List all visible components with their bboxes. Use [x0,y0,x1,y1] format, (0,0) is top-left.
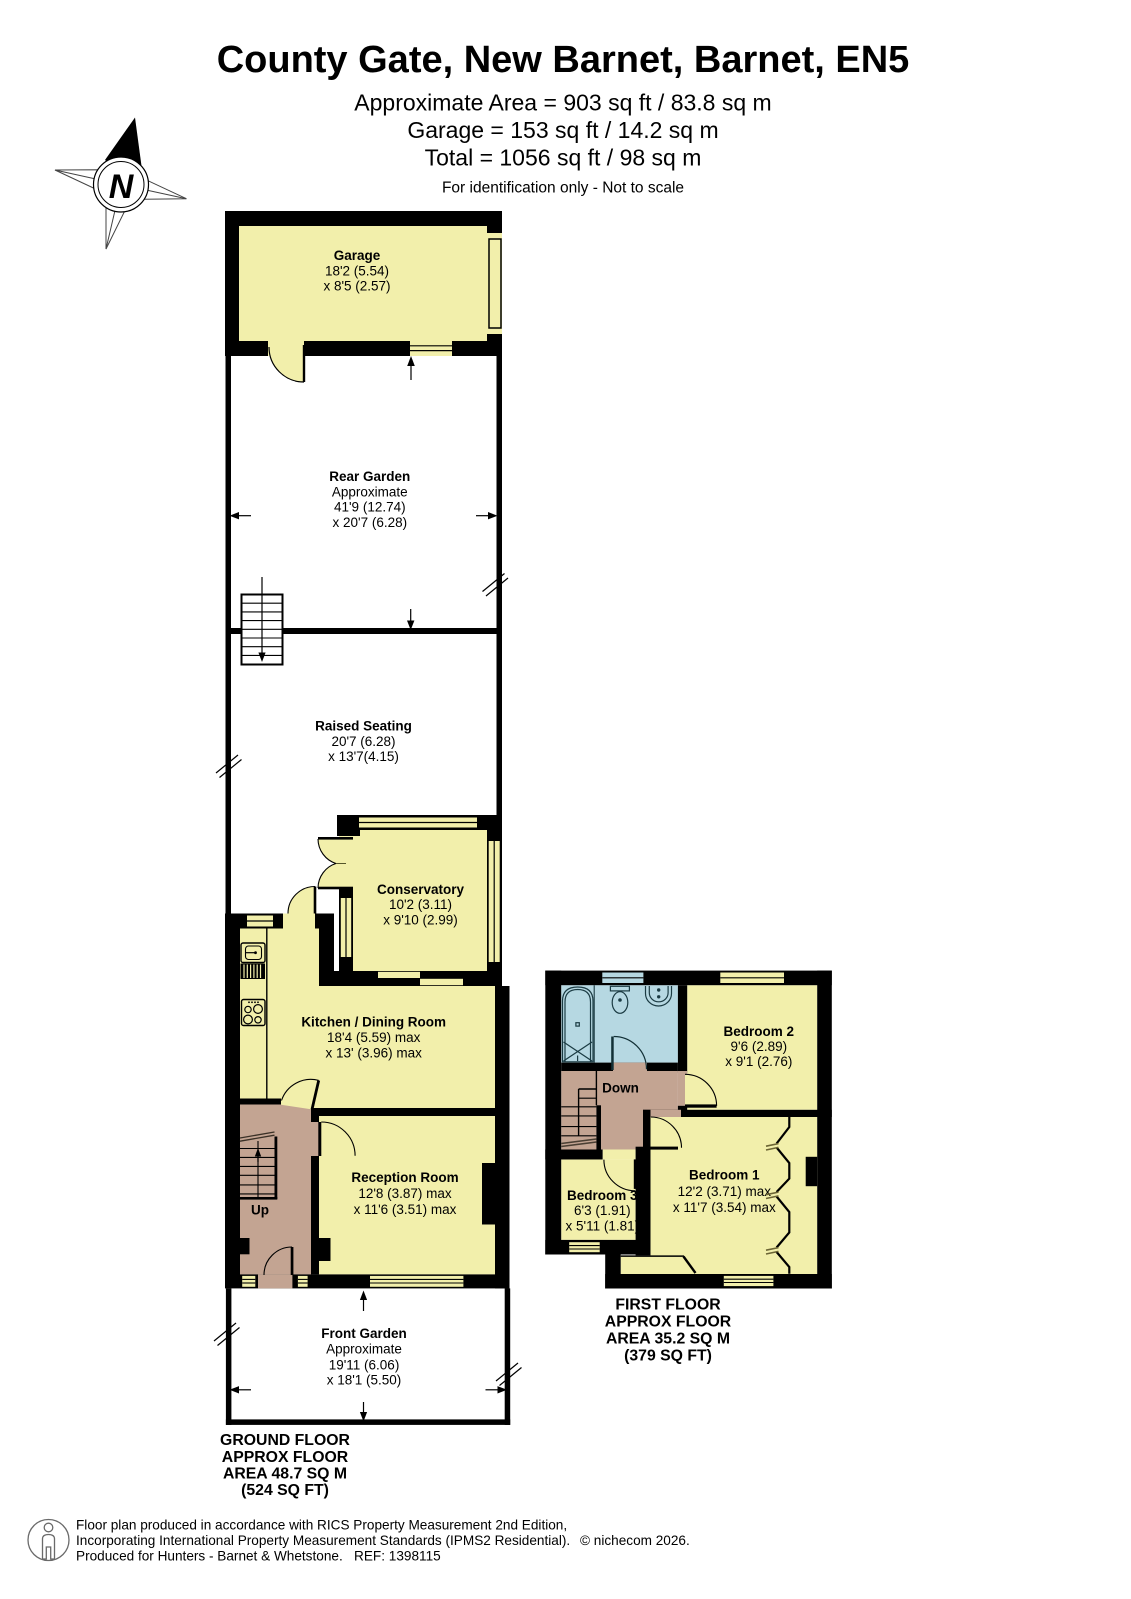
svg-text:APPROX FLOOR: APPROX FLOOR [222,1449,349,1466]
svg-text:x 11'6 (3.51) max: x 11'6 (3.51) max [354,1202,457,1217]
svg-text:Produced for Hunters - Barnet: Produced for Hunters - Barnet & Whetston… [76,1549,441,1564]
svg-text:Down: Down [602,1081,639,1096]
svg-text:12'8 (3.87) max: 12'8 (3.87) max [358,1186,452,1201]
svg-text:Bedroom 1: Bedroom 1 [689,1168,760,1183]
svg-text:Raised Seating: Raised Seating [315,719,412,734]
svg-text:Garage = 153 sq ft / 14.2 sq m: Garage = 153 sq ft / 14.2 sq m [407,117,718,143]
svg-text:x 11'7 (3.54) max: x 11'7 (3.54) max [673,1200,776,1215]
svg-text:APPROX FLOOR: APPROX FLOOR [605,1314,732,1331]
svg-text:x 20'7 (6.28): x 20'7 (6.28) [332,515,407,530]
svg-text:Front Garden: Front Garden [321,1326,407,1341]
svg-text:For identification only - Not: For identification only - Not to scale [442,180,684,197]
svg-text:County Gate, New Barnet, Barne: County Gate, New Barnet, Barnet, EN5 [217,39,910,81]
svg-text:AREA 35.2 SQ M: AREA 35.2 SQ M [606,1331,730,1348]
svg-text:(524 SQ FT): (524 SQ FT) [241,1482,329,1499]
svg-text:Approximate: Approximate [326,1342,402,1357]
svg-text:Incorporating International Pr: Incorporating International Property Mea… [76,1533,570,1548]
svg-text:x 9'10 (2.99): x 9'10 (2.99) [383,913,458,928]
svg-text:x 13'7(4.15): x 13'7(4.15) [328,749,399,764]
svg-text:Bedroom 2: Bedroom 2 [724,1024,795,1039]
svg-text:19'11 (6.06): 19'11 (6.06) [329,1358,400,1373]
svg-text:© nichecom 2026.: © nichecom 2026. [580,1533,690,1548]
svg-text:(379 SQ FT): (379 SQ FT) [624,1348,712,1365]
svg-text:Rear Garden: Rear Garden [329,469,410,484]
svg-text:20'7 (6.28): 20'7 (6.28) [331,734,395,749]
svg-text:Conservatory: Conservatory [377,882,465,897]
svg-text:Floor plan produced in accorda: Floor plan produced in accordance with R… [76,1518,567,1533]
svg-text:18'2 (5.54): 18'2 (5.54) [325,264,389,279]
svg-text:9'6 (2.89): 9'6 (2.89) [730,1039,787,1054]
svg-text:N: N [109,168,135,206]
svg-text:Reception Room: Reception Room [351,1170,458,1185]
svg-text:x 13' (3.96) max: x 13' (3.96) max [326,1046,423,1061]
svg-text:AREA 48.7 SQ M: AREA 48.7 SQ M [223,1466,347,1483]
svg-text:x 18'1 (5.50): x 18'1 (5.50) [327,1373,402,1388]
svg-text:Bedroom 3: Bedroom 3 [567,1188,638,1203]
svg-text:Total = 1056 sq ft / 98 sq m: Total = 1056 sq ft / 98 sq m [425,145,702,171]
svg-text:GROUND FLOOR: GROUND FLOOR [220,1432,350,1449]
svg-text:12'2 (3.71) max: 12'2 (3.71) max [678,1184,772,1199]
svg-text:Up: Up [251,1203,269,1218]
svg-text:x 8'5 (2.57): x 8'5 (2.57) [323,279,390,294]
svg-text:10'2 (3.11): 10'2 (3.11) [389,897,452,912]
svg-text:x 5'11 (1.81): x 5'11 (1.81) [565,1219,639,1234]
svg-text:FIRST FLOOR: FIRST FLOOR [615,1297,721,1314]
svg-text:18'4 (5.59) max: 18'4 (5.59) max [327,1030,421,1045]
svg-text:6'3 (1.91): 6'3 (1.91) [574,1203,631,1218]
svg-text:Approximate: Approximate [332,485,408,500]
svg-text:41'9 (12.74): 41'9 (12.74) [334,500,406,515]
svg-text:Garage: Garage [334,248,381,263]
svg-text:Approximate Area = 903 sq ft /: Approximate Area = 903 sq ft / 83.8 sq m [354,90,771,116]
svg-text:x 9'1 (2.76): x 9'1 (2.76) [725,1054,792,1069]
svg-text:Kitchen / Dining Room: Kitchen / Dining Room [301,1015,446,1030]
